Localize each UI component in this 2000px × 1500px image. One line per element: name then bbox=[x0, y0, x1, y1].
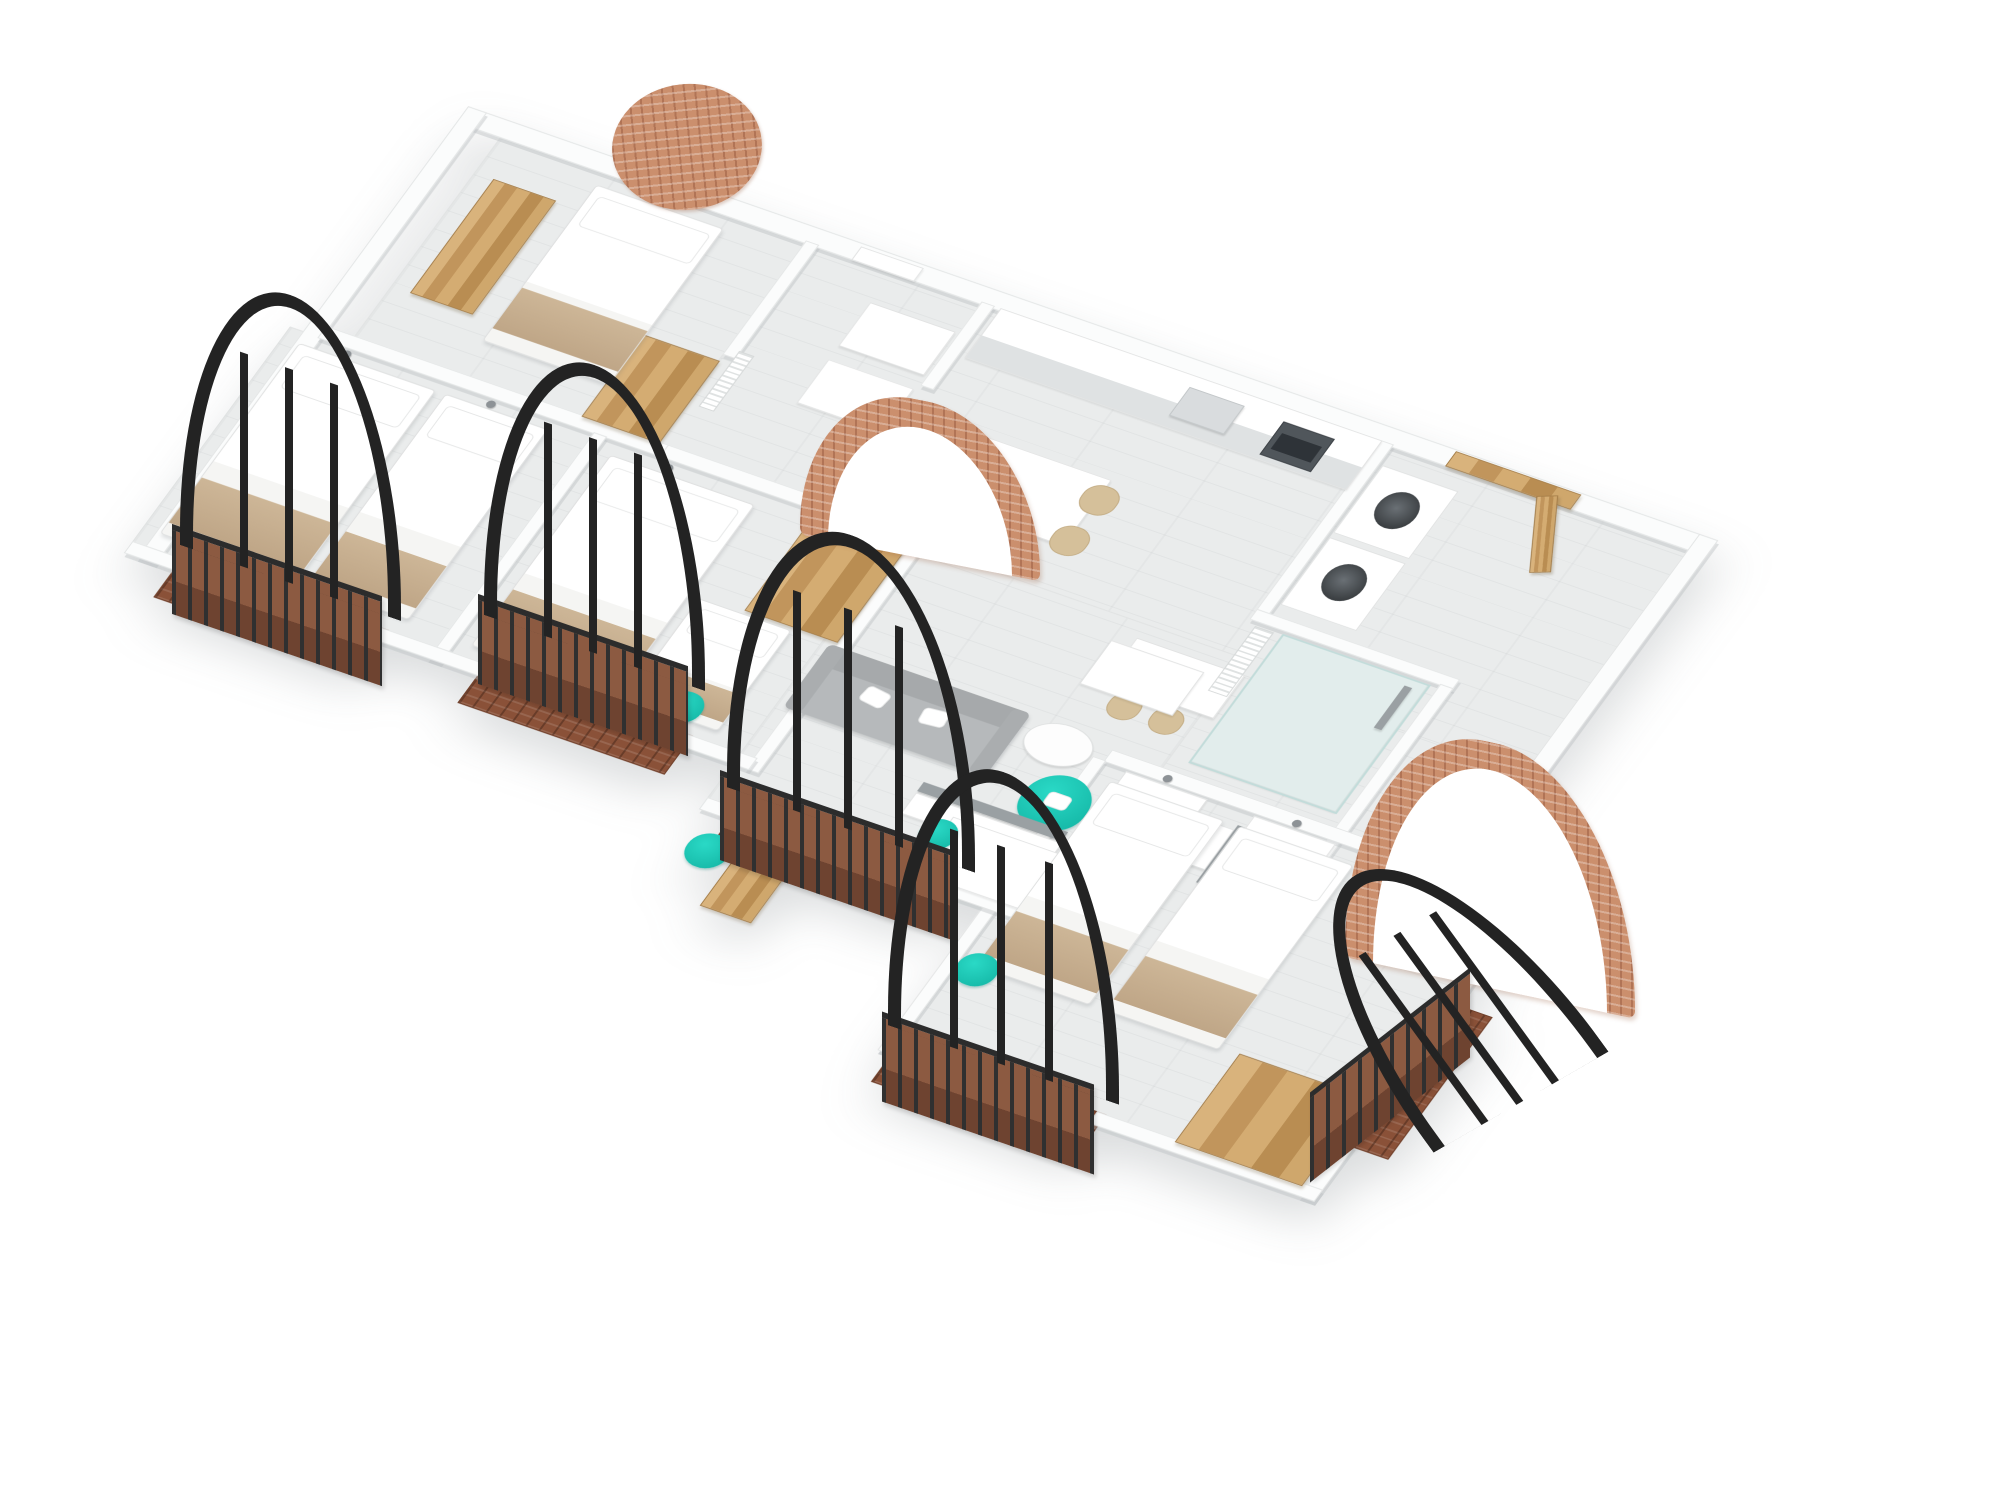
window-mullion bbox=[634, 452, 642, 669]
window-mullion bbox=[844, 608, 852, 831]
window-mullion bbox=[544, 421, 552, 638]
window-mullion bbox=[589, 436, 597, 653]
window-mullion bbox=[895, 625, 903, 848]
window-mullion bbox=[997, 844, 1005, 1065]
window-mullion bbox=[330, 382, 338, 599]
window-mullion bbox=[950, 828, 958, 1049]
floorplan-canvas bbox=[0, 0, 2000, 1500]
window-mullion bbox=[793, 590, 801, 813]
window-mullion bbox=[285, 366, 293, 583]
window-mullion bbox=[240, 351, 248, 568]
window-mullion bbox=[1045, 861, 1053, 1082]
